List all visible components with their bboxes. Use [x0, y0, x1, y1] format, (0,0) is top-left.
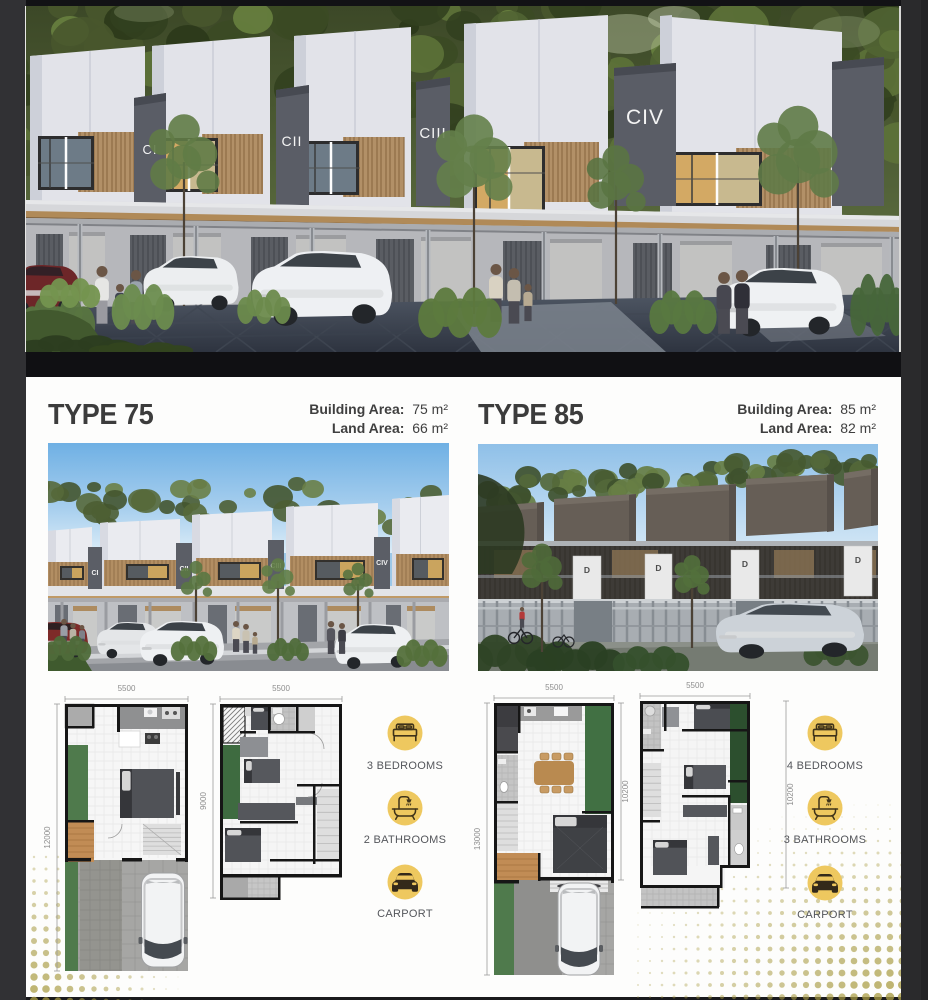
- svg-text:D: D: [742, 559, 748, 569]
- svg-text:3 BATHROOMS: 3 BATHROOMS: [784, 834, 867, 846]
- svg-text:12000: 12000: [43, 826, 52, 849]
- svg-text:9000: 9000: [199, 792, 208, 810]
- svg-text:5500: 5500: [118, 684, 136, 693]
- svg-text:4 BEDROOMS: 4 BEDROOMS: [787, 760, 863, 772]
- svg-text:CIV: CIV: [376, 560, 388, 567]
- svg-text:10200: 10200: [621, 780, 630, 803]
- svg-text:5500: 5500: [272, 684, 290, 693]
- svg-text:CARPORT: CARPORT: [377, 908, 433, 920]
- svg-text:13000: 13000: [473, 827, 482, 850]
- svg-text:5500: 5500: [545, 683, 563, 692]
- svg-text:2 BATHROOMS: 2 BATHROOMS: [364, 834, 447, 846]
- svg-text:CARPORT: CARPORT: [797, 909, 853, 921]
- svg-text:CI: CI: [92, 570, 99, 577]
- svg-text:CII: CII: [282, 133, 303, 149]
- svg-text:10200: 10200: [786, 783, 795, 806]
- svg-text:3 BEDROOMS: 3 BEDROOMS: [367, 760, 443, 772]
- svg-text:CIV: CIV: [626, 106, 664, 129]
- svg-text:D: D: [584, 565, 590, 575]
- svg-text:D: D: [655, 563, 661, 573]
- svg-text:D: D: [855, 555, 861, 565]
- svg-text:5500: 5500: [686, 681, 704, 690]
